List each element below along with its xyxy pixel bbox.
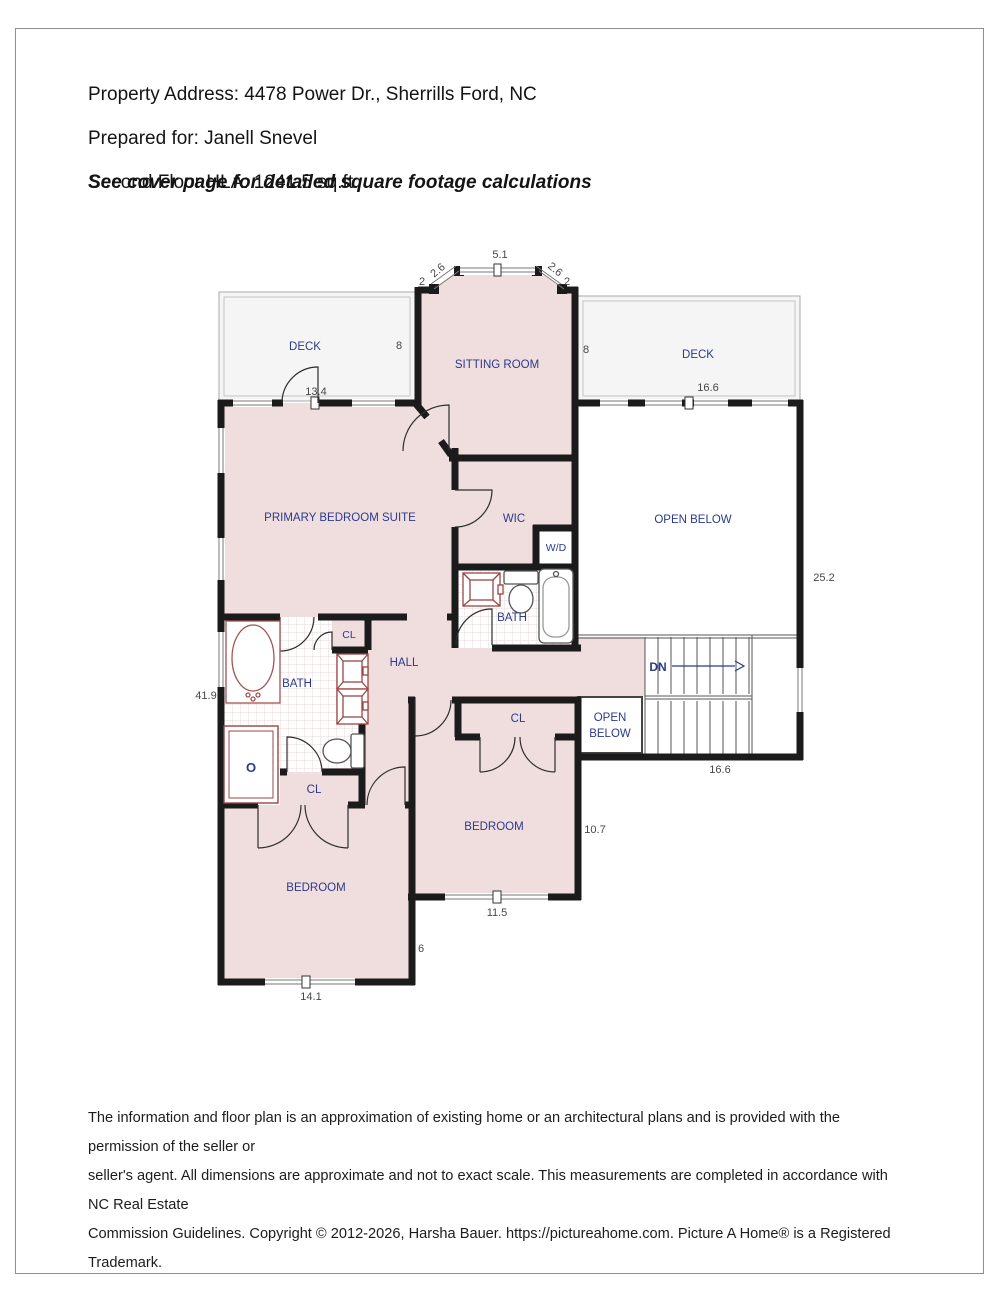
label-dim-sitting-left: 8 <box>396 340 402 352</box>
open-below-small-box <box>578 697 642 753</box>
label-dim-bay-diag-right: 2.6 <box>545 260 564 279</box>
label-dim-deck-right-width: 16.6 <box>697 382 718 394</box>
label-cl-bedroom-mid: CL <box>511 713 526 725</box>
label-wic: WIC <box>503 513 525 525</box>
hall-bath-tub <box>539 569 573 643</box>
primary-bedroom-area <box>221 403 455 617</box>
label-dim-bedroom-mid-width: 11.5 <box>487 907 508 919</box>
label-bedroom-left: BEDROOM <box>286 882 345 894</box>
label-bath-hall: BATH <box>497 612 527 624</box>
label-cl-bath: CL <box>342 629 356 641</box>
label-dim-bay-width: 5.1 <box>492 249 507 261</box>
label-dim-bay-stub-right: 2 <box>564 276 570 288</box>
label-sitting-room: SITTING ROOM <box>455 359 539 371</box>
primary-bath-vanity-sinks <box>337 654 368 724</box>
bedroom-mid-area <box>412 700 578 897</box>
label-bath-primary: BATH <box>282 678 312 690</box>
property-address: Property Address: 4478 Power Dr., Sherri… <box>88 84 537 105</box>
disclaimer-line2: seller's agent. All dimensions are appro… <box>88 1168 888 1213</box>
label-shower-drain: O <box>246 760 256 775</box>
disclaimer-line1: The information and floor plan is an app… <box>88 1110 840 1155</box>
label-dn: DN <box>649 660 666 674</box>
disclaimer: The information and floor plan is an app… <box>88 1104 910 1278</box>
label-open-below-small-line2: BELOW <box>589 728 631 740</box>
label-primary-bedroom-suite: PRIMARY BEDROOM SUITE <box>264 512 416 524</box>
hall-bath-vanity-sink <box>463 573 503 606</box>
label-open-below-small-line1: OPEN <box>594 712 627 724</box>
label-deck-left: DECK <box>289 341 321 353</box>
label-dim-stairs-width: 16.6 <box>709 764 730 776</box>
cover-page-note: See cover page for detailed square foota… <box>88 172 592 194</box>
prepared-for: Prepared for: Janell Snevel <box>88 128 317 149</box>
disclaimer-line3: Commission Guidelines. Copyright © 2012-… <box>88 1226 891 1271</box>
label-deck-right: DECK <box>682 349 714 361</box>
label-dim-left-height: 41.9 <box>195 690 216 702</box>
label-dim-right-height: 25.2 <box>813 572 834 584</box>
floor-plan-drawing: DECKSITTING ROOMDECKPRIMARY BEDROOM SUIT… <box>185 240 850 1015</box>
label-dim-bedroom-left-height: 6 <box>418 943 424 955</box>
label-wd: W/D <box>546 542 567 554</box>
label-dim-bedroom-left-width: 14.1 <box>300 991 321 1003</box>
label-bedroom-mid: BEDROOM <box>464 821 523 833</box>
label-dim-sitting-right: 8 <box>583 344 589 356</box>
label-dim-bay-stub-left: 2 <box>419 276 425 288</box>
label-cl-bedroom-left: CL <box>307 784 322 796</box>
label-dim-bedroom-mid-height: 10.7 <box>584 824 605 836</box>
floor-plan-page: Property Address: 4478 Power Dr., Sherri… <box>0 0 1000 1294</box>
label-dim-deck-left-width: 13.4 <box>305 386 326 398</box>
label-open-below: OPEN BELOW <box>654 514 731 526</box>
primary-bath-tub <box>226 621 280 703</box>
label-dim-bay-diag-left: 2.6 <box>428 261 447 280</box>
label-hall: HALL <box>390 657 419 669</box>
